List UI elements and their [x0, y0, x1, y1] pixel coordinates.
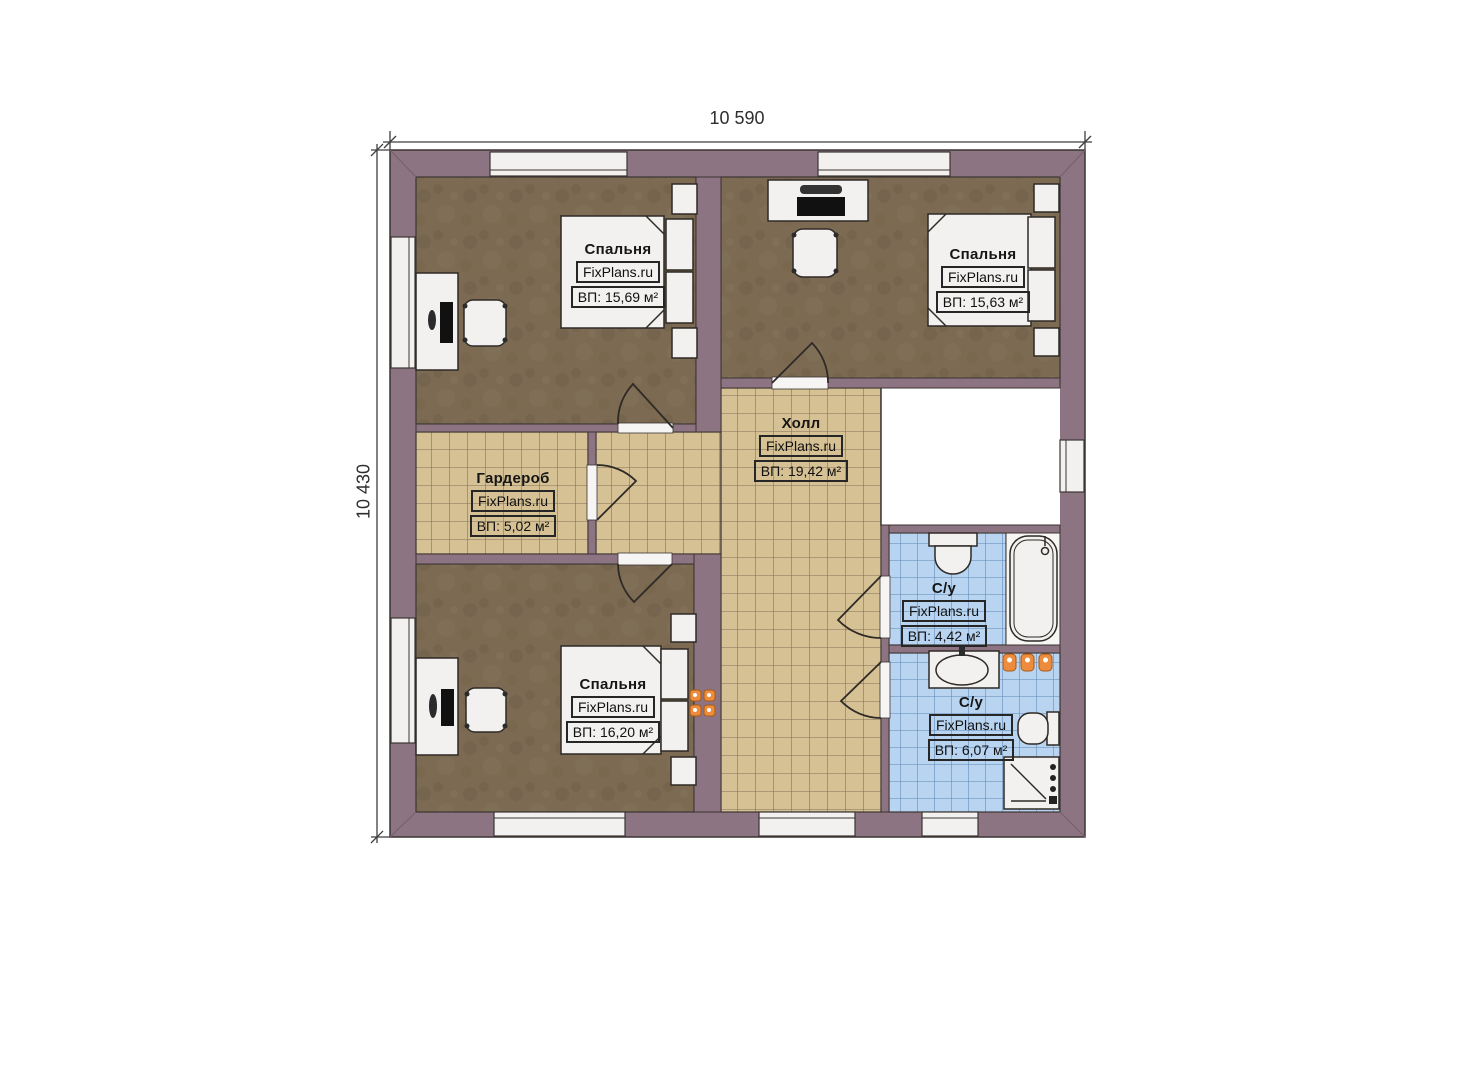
dimension-height-label: 10 430 — [354, 457, 375, 527]
door-threshold-wardrobe — [587, 465, 597, 520]
toilet-tank — [1047, 712, 1059, 745]
wall-v1 — [696, 177, 721, 432]
floor-wardrobe — [416, 432, 588, 554]
door-threshold-bedroom-top-left — [618, 423, 673, 433]
window-top-2 — [818, 152, 950, 176]
wall-v1b — [694, 554, 721, 812]
window-top-1 — [490, 152, 627, 176]
window-right-1 — [1060, 440, 1084, 492]
computer-monitor — [440, 302, 453, 343]
bed-pillow — [666, 219, 693, 270]
bed — [928, 214, 1031, 326]
bed — [561, 646, 661, 754]
bed-pillow — [661, 701, 688, 751]
window-bottom-3 — [922, 812, 978, 836]
window-bottom-2 — [759, 812, 855, 836]
desk-chair — [464, 300, 506, 346]
nightstand — [671, 757, 696, 785]
bed-pillow — [666, 272, 693, 323]
nightstand — [671, 614, 696, 642]
door-threshold-bathroom-bottom — [880, 662, 890, 718]
nightstand — [672, 184, 697, 214]
toilet-tank — [929, 533, 977, 546]
desk-chair — [466, 688, 506, 732]
floor-corridor — [596, 432, 721, 554]
window-left-2 — [391, 618, 415, 743]
bed — [561, 216, 664, 328]
floor-plan-page: Спальня FixPlans.ru ВП: 15,69 м² Спальня… — [0, 0, 1473, 1080]
sink-tap — [959, 647, 965, 656]
bed-pillow — [661, 649, 688, 699]
nightstand — [1034, 328, 1059, 356]
window-bottom-1 — [494, 812, 625, 836]
radiator — [1003, 654, 1052, 671]
door-threshold-bedroom-top-right — [772, 377, 828, 389]
printer-top — [800, 185, 842, 194]
desk-chair — [793, 229, 837, 277]
nightstand — [672, 328, 697, 358]
door-threshold-bedroom-bottom-left — [618, 553, 672, 565]
bed-pillow — [1028, 217, 1055, 268]
floor-plan-drawing — [0, 0, 1473, 1080]
door-threshold-bathroom-top — [880, 576, 890, 638]
computer-monitor — [441, 689, 454, 726]
mouse — [428, 310, 436, 330]
wall-h4 — [881, 525, 1060, 533]
sink-bowl — [936, 655, 988, 685]
printer — [797, 197, 845, 216]
bathtub — [1010, 536, 1057, 641]
floor-hall-white-area — [881, 388, 1060, 526]
nightstand — [1034, 184, 1059, 212]
window-left-1 — [391, 237, 415, 368]
dimension-width-label: 10 590 — [672, 108, 802, 129]
toilet-bowl — [1018, 713, 1048, 744]
mouse — [429, 694, 437, 718]
toilet-bowl — [935, 546, 971, 574]
bed-pillow — [1028, 270, 1055, 321]
